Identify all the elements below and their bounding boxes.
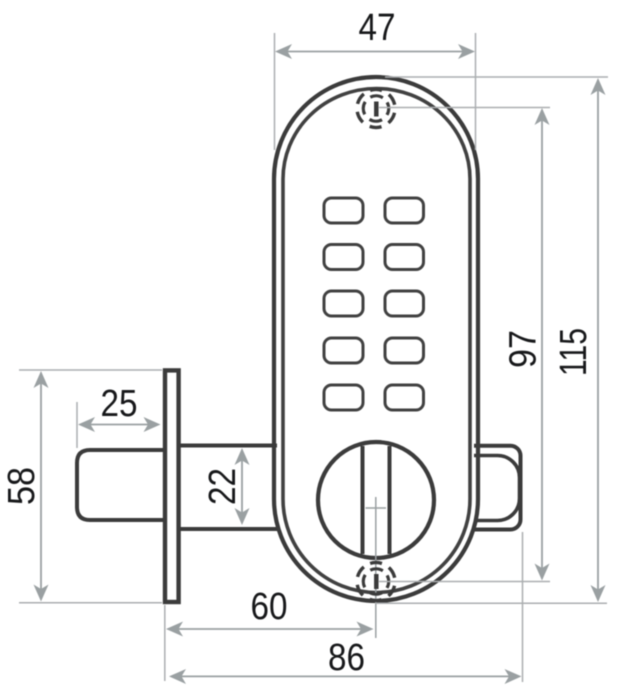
svg-text:58: 58 [1, 467, 43, 505]
svg-text:115: 115 [553, 328, 595, 376]
svg-text:22: 22 [202, 468, 244, 505]
svg-text:47: 47 [359, 7, 396, 49]
svg-text:25: 25 [101, 383, 138, 425]
svg-text:86: 86 [328, 637, 365, 679]
svg-text:97: 97 [503, 330, 545, 368]
svg-text:60: 60 [251, 586, 288, 628]
